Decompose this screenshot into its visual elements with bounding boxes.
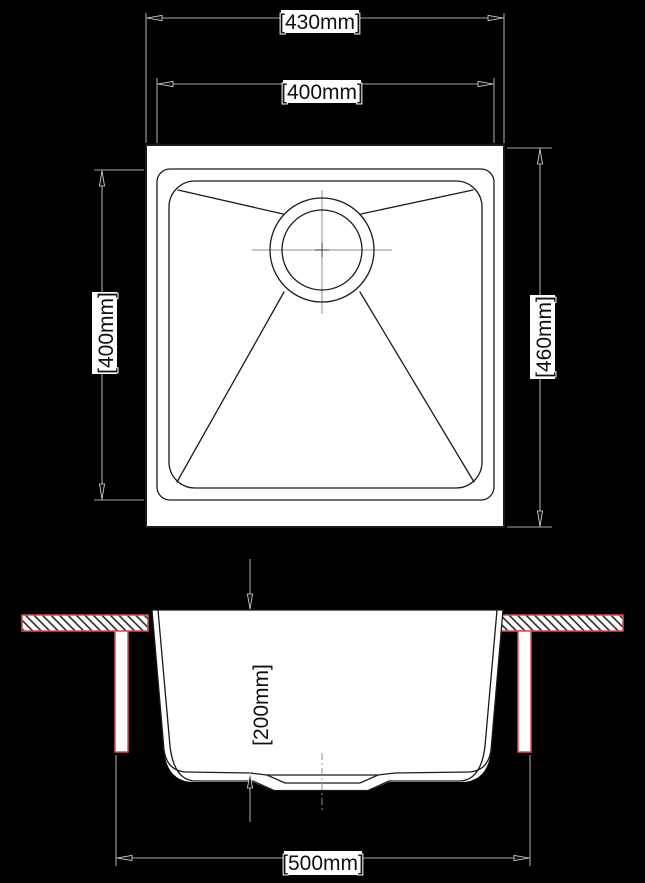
dim-label-460: [460mm] <box>533 296 556 378</box>
arrowhead <box>147 15 162 20</box>
arrowhead <box>537 149 542 164</box>
arrowhead <box>247 594 252 609</box>
countertop-right <box>501 615 623 631</box>
cabinet-panel-left <box>115 631 128 752</box>
dim-label-400-h: [400mm] <box>281 81 363 104</box>
cabinet-panel-right <box>518 631 531 752</box>
arrowhead <box>99 484 104 499</box>
arrowhead <box>514 855 529 860</box>
arrowhead <box>537 511 542 526</box>
dim-plan-outer-width: [430mm] <box>146 10 504 143</box>
sink-section-body <box>152 610 503 791</box>
dim-label-430: [430mm] <box>279 11 361 34</box>
dim-plan-bowl-width: [400mm] <box>157 78 494 143</box>
countertop-left <box>22 615 148 631</box>
sink-technical-drawing: [430mm] [400mm] [400mm] [460mm] <box>0 0 645 883</box>
plan-view <box>146 145 504 527</box>
sink-outer-edge <box>146 145 504 527</box>
arrowhead <box>478 81 493 86</box>
dim-plan-bowl-height: [400mm] <box>92 170 144 500</box>
arrowhead <box>158 81 173 86</box>
section-view <box>22 610 623 812</box>
dim-label-500: [500mm] <box>282 852 364 875</box>
drawing-canvas: [430mm] [400mm] [400mm] [460mm] <box>0 0 645 883</box>
dim-plan-outer-height: [460mm] <box>507 148 556 527</box>
dim-label-200: [200mm] <box>250 664 273 746</box>
arrowhead <box>488 15 503 20</box>
arrowhead <box>117 855 132 860</box>
arrowhead <box>99 171 104 186</box>
dim-label-400-v: [400mm] <box>95 292 118 374</box>
